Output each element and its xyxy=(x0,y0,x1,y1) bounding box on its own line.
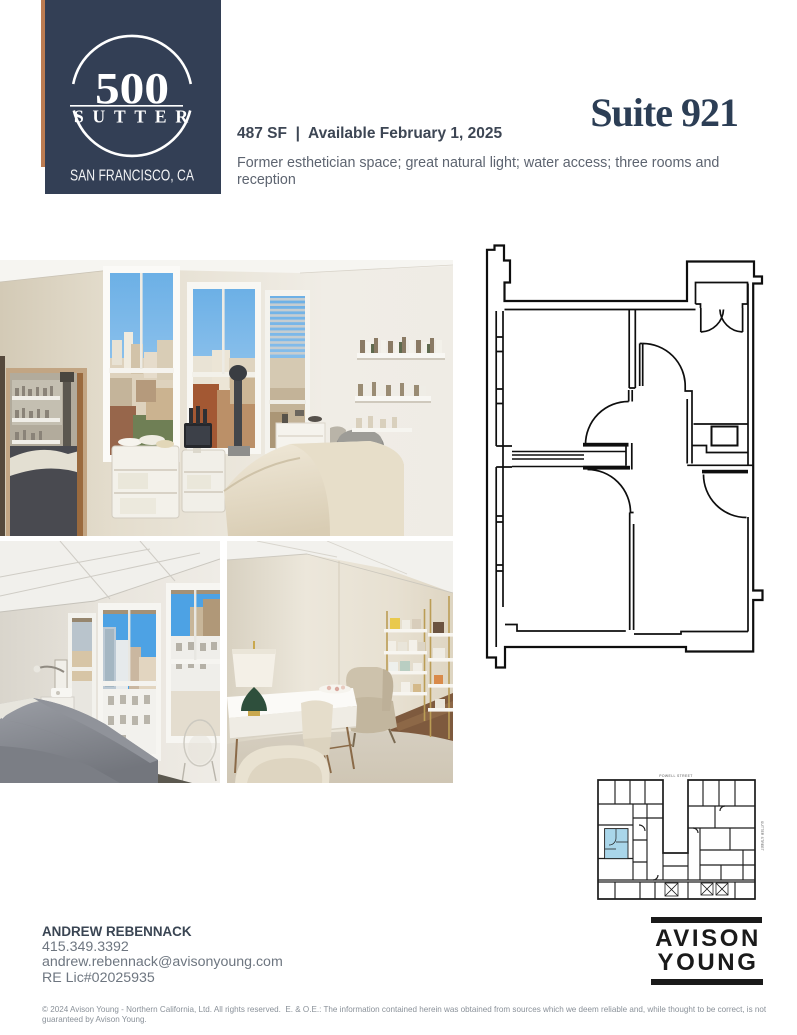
svg-text:SAN FRANCISCO, CA: SAN FRANCISCO, CA xyxy=(70,168,195,185)
svg-text:SUTTER STREET: SUTTER STREET xyxy=(760,821,764,851)
svg-text:POWELL STREET: POWELL STREET xyxy=(659,774,693,778)
